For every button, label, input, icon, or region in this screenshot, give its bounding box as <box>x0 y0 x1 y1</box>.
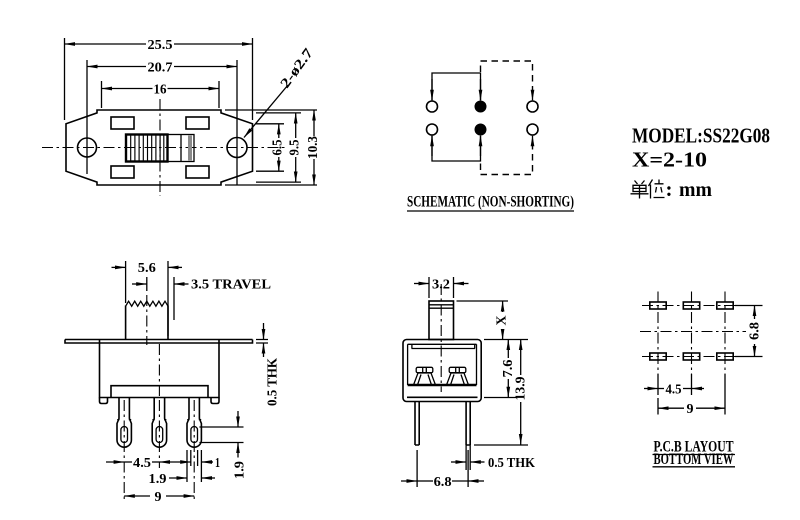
svg-text:BOTTOM VIEW: BOTTOM VIEW <box>654 451 734 468</box>
svg-text:X=2-10: X=2-10 <box>632 148 707 172</box>
svg-text:13.9: 13.9 <box>514 377 529 401</box>
svg-text:0.5 THK: 0.5 THK <box>488 456 535 471</box>
svg-text::: : <box>666 177 673 201</box>
svg-text:4.5: 4.5 <box>133 456 151 471</box>
svg-text:mm: mm <box>679 177 712 201</box>
svg-text:MODEL:SS22G08: MODEL:SS22G08 <box>632 124 770 148</box>
svg-text:6.5: 6.5 <box>271 140 286 156</box>
svg-text:10.3: 10.3 <box>306 136 321 159</box>
svg-text:9.5: 9.5 <box>288 140 303 156</box>
svg-text:0.5 THK: 0.5 THK <box>266 358 281 406</box>
svg-text:SCHEMATIC (NON-SHORTING): SCHEMATIC (NON-SHORTING) <box>407 194 574 211</box>
svg-text:5.6: 5.6 <box>138 261 156 276</box>
svg-text:6.8: 6.8 <box>748 322 763 340</box>
svg-text:1: 1 <box>215 456 220 471</box>
svg-text:1.9: 1.9 <box>233 461 248 479</box>
svg-text:9: 9 <box>155 490 162 505</box>
svg-text:4.5: 4.5 <box>666 382 682 397</box>
svg-text:1.9: 1.9 <box>149 472 167 487</box>
svg-text:X: X <box>495 316 510 326</box>
svg-text:2-ø2.7: 2-ø2.7 <box>278 46 317 91</box>
svg-text:25.5: 25.5 <box>148 38 173 53</box>
svg-text:7.6: 7.6 <box>501 360 516 378</box>
svg-text:9: 9 <box>687 402 694 417</box>
svg-text:20.7: 20.7 <box>148 60 173 75</box>
svg-text:6.8: 6.8 <box>434 475 452 490</box>
svg-text:3.5 TRAVEL: 3.5 TRAVEL <box>191 278 271 293</box>
svg-text:16: 16 <box>154 82 167 97</box>
